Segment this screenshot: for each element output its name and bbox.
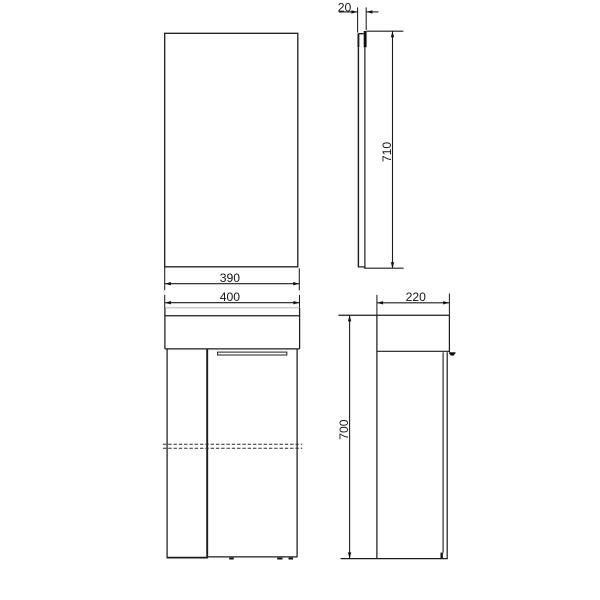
svg-text:400: 400 bbox=[220, 290, 241, 304]
svg-text:700: 700 bbox=[337, 419, 351, 440]
svg-text:710: 710 bbox=[380, 142, 394, 163]
svg-text:220: 220 bbox=[406, 290, 427, 304]
svg-text:390: 390 bbox=[220, 271, 241, 285]
